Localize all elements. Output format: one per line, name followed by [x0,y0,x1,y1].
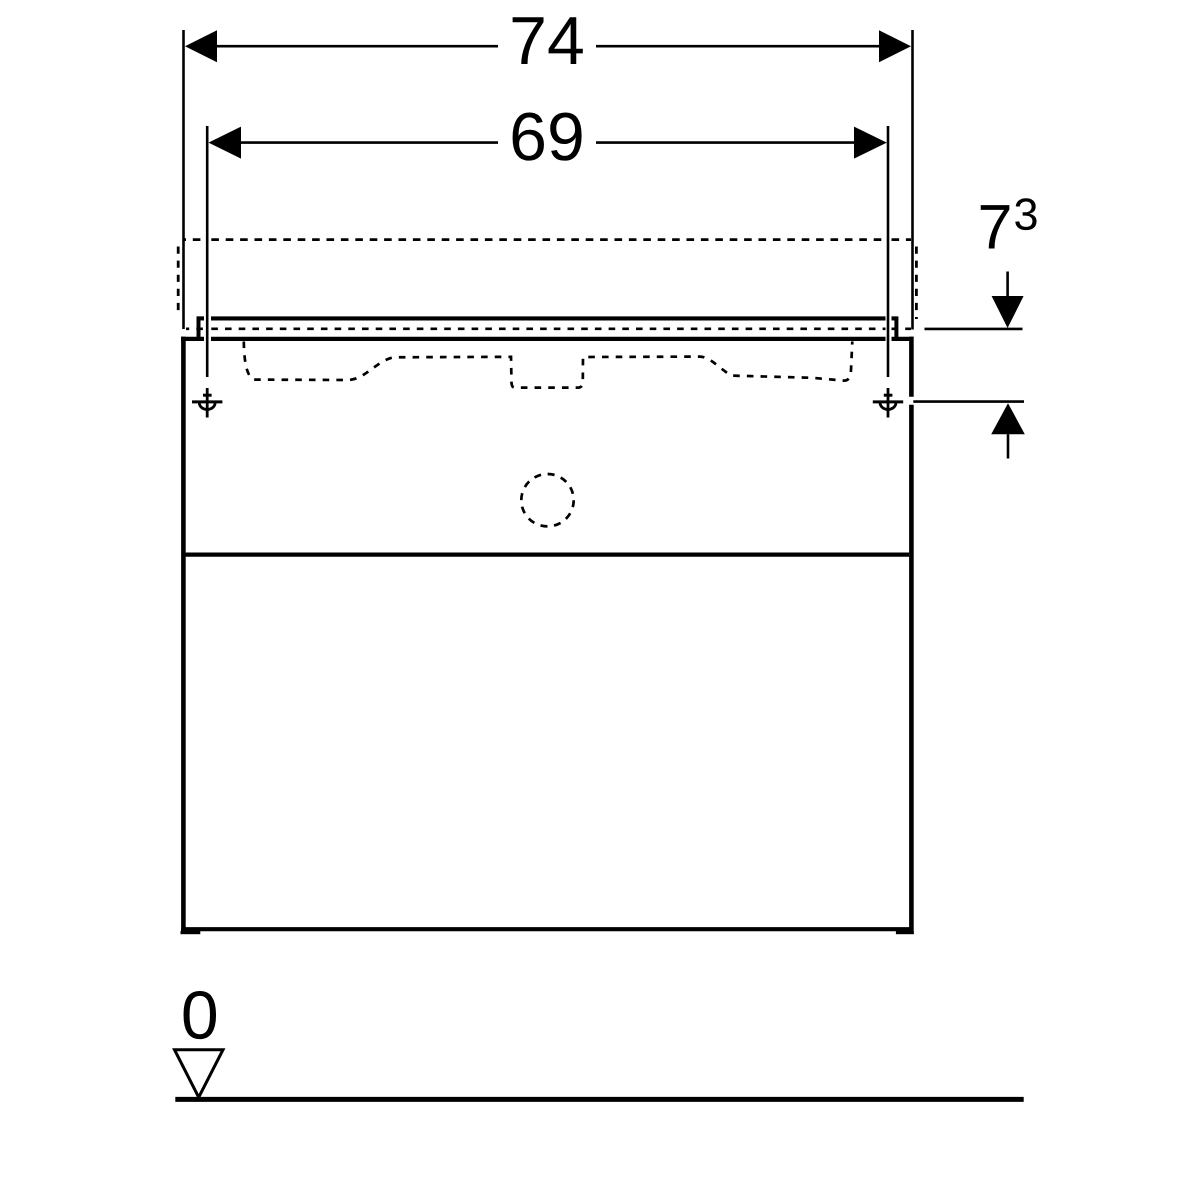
svg-text:0: 0 [181,977,219,1053]
svg-text:7: 7 [978,192,1013,262]
svg-text:69: 69 [509,99,585,175]
svg-text:74: 74 [509,3,585,79]
